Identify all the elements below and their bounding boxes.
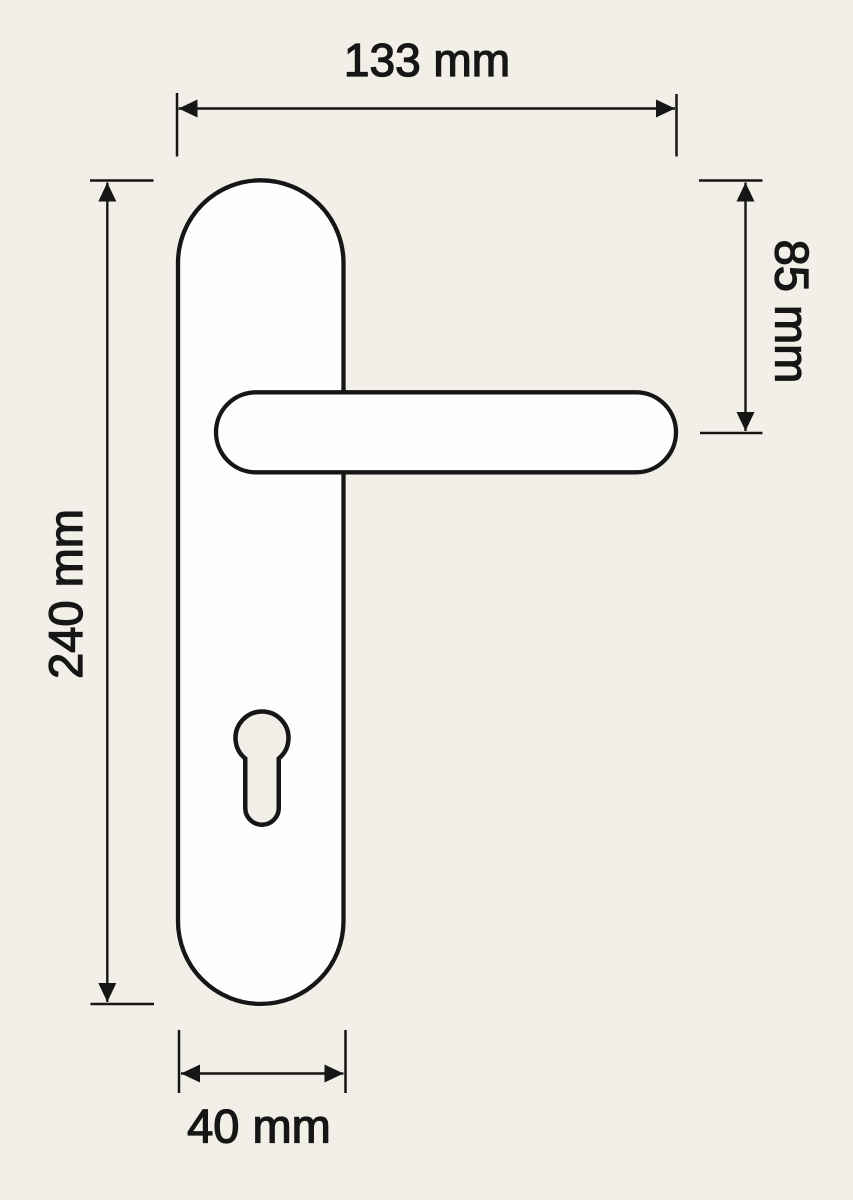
svg-text:85 mm: 85 mm: [766, 240, 819, 384]
svg-text:240 mm: 240 mm: [39, 509, 92, 679]
svg-text:40 mm: 40 mm: [187, 1100, 331, 1153]
svg-text:133 mm: 133 mm: [344, 34, 510, 86]
